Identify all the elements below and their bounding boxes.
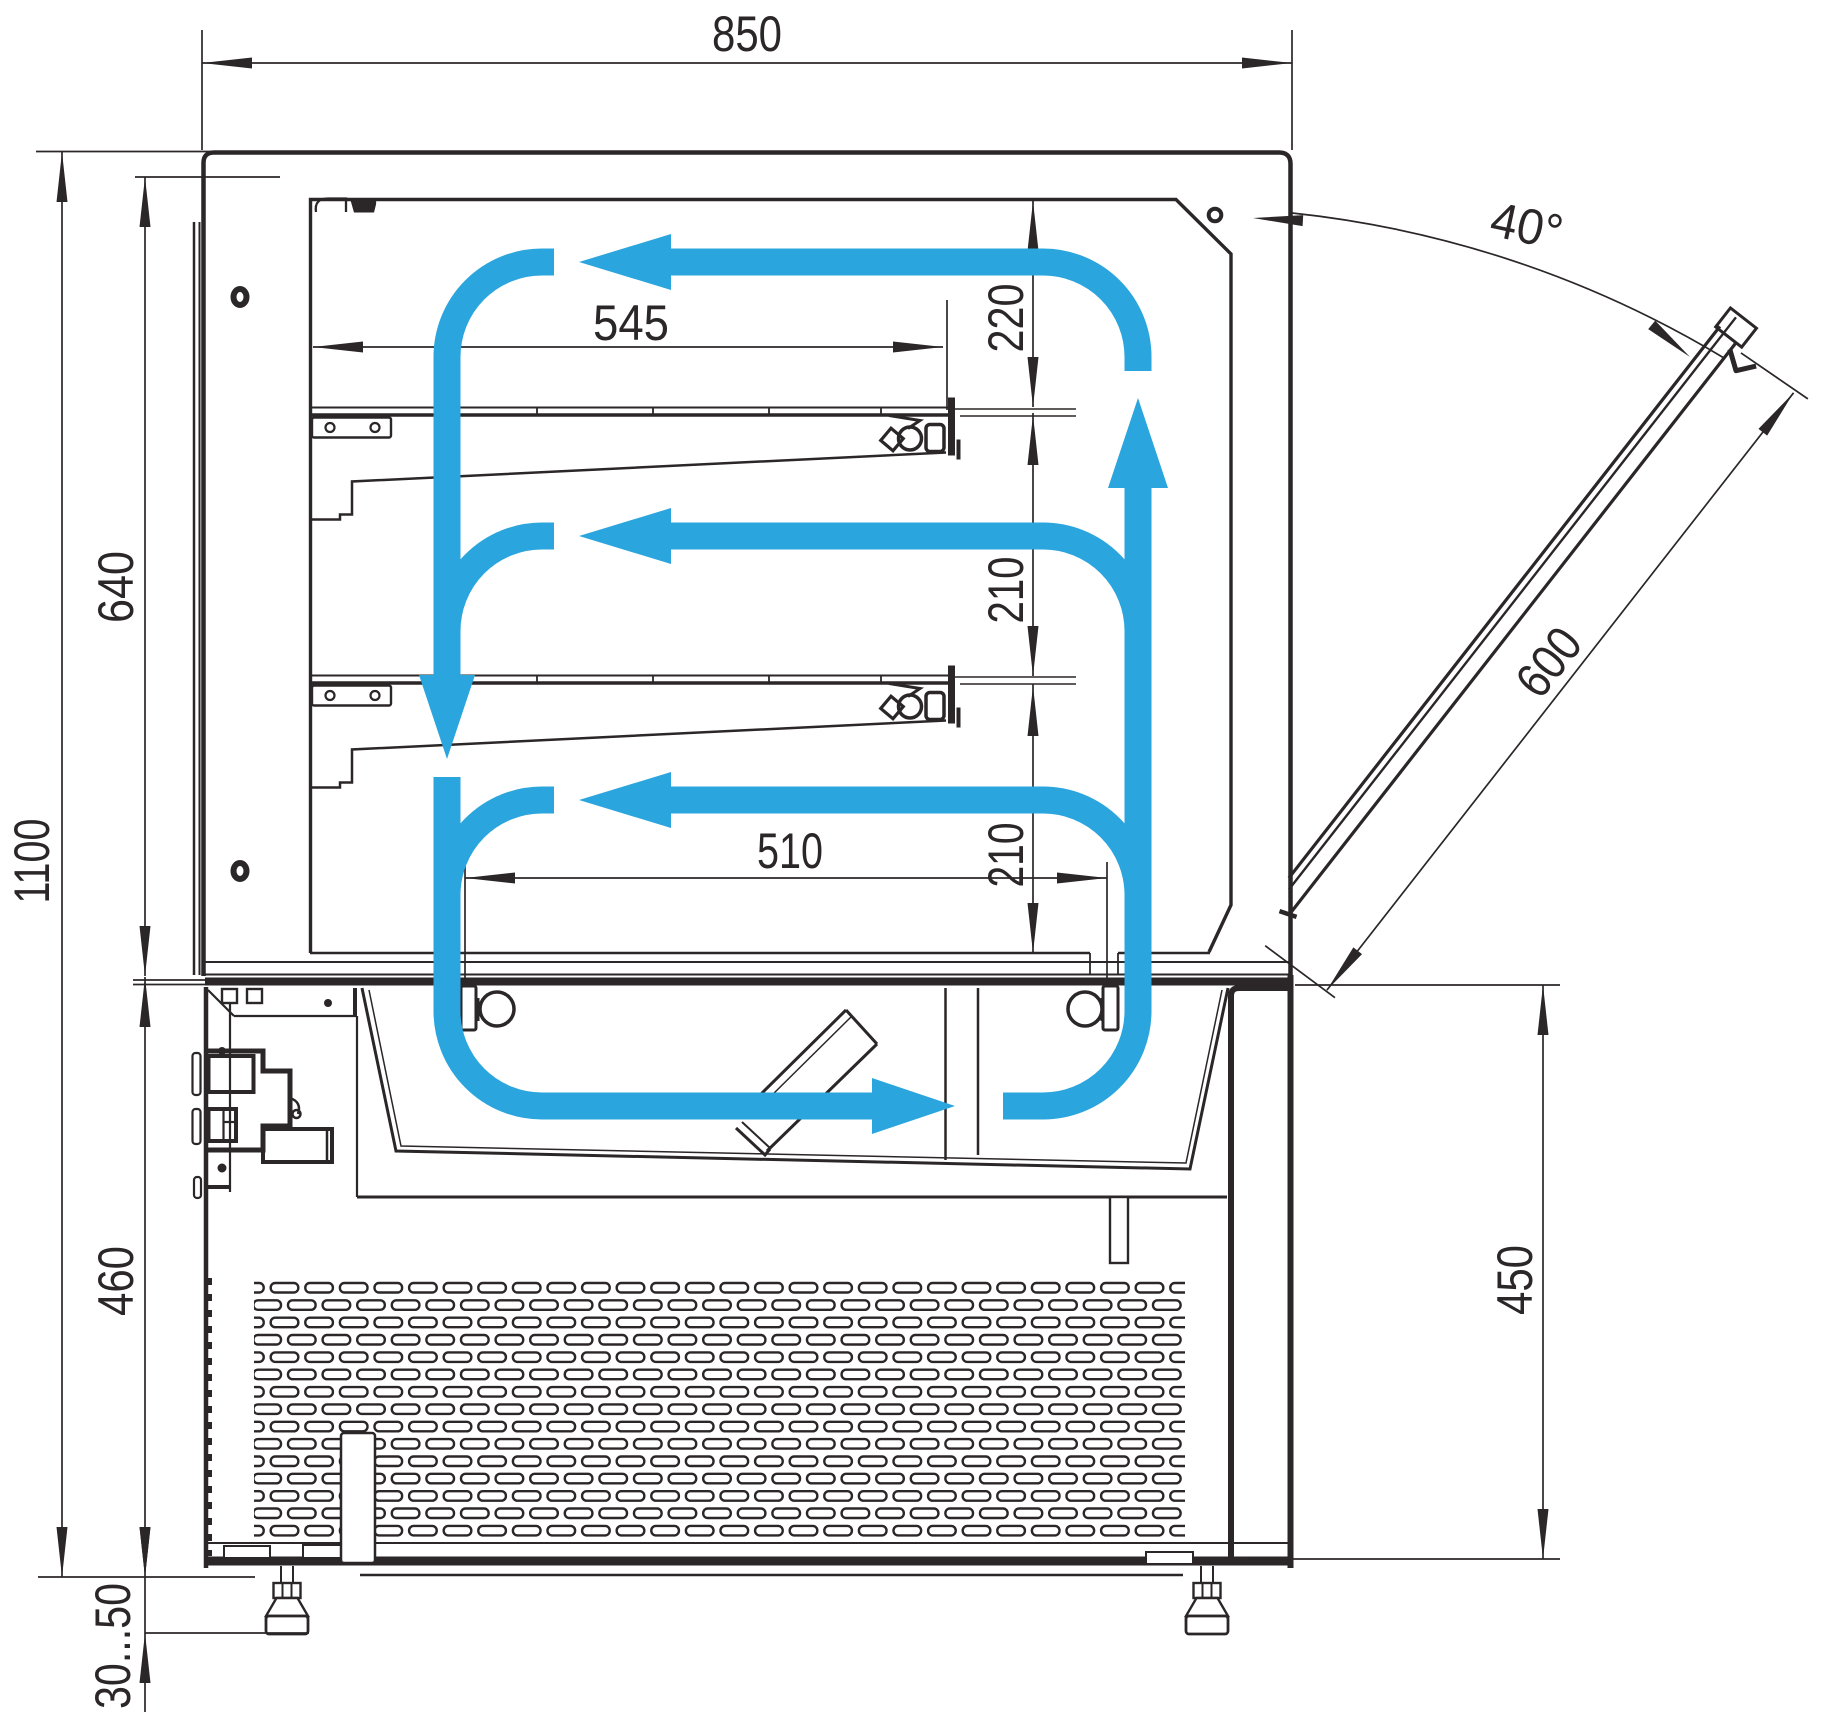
svg-text:210: 210 <box>978 557 1034 624</box>
svg-text:220: 220 <box>978 284 1034 353</box>
svg-text:30...50: 30...50 <box>85 1583 141 1709</box>
svg-text:640: 640 <box>88 551 144 623</box>
svg-text:545: 545 <box>593 295 669 351</box>
svg-text:850: 850 <box>712 6 782 62</box>
svg-text:1100: 1100 <box>4 819 60 904</box>
svg-text:460: 460 <box>88 1246 144 1316</box>
svg-text:510: 510 <box>757 823 823 879</box>
svg-text:210: 210 <box>978 823 1034 888</box>
svg-text:450: 450 <box>1487 1245 1543 1315</box>
